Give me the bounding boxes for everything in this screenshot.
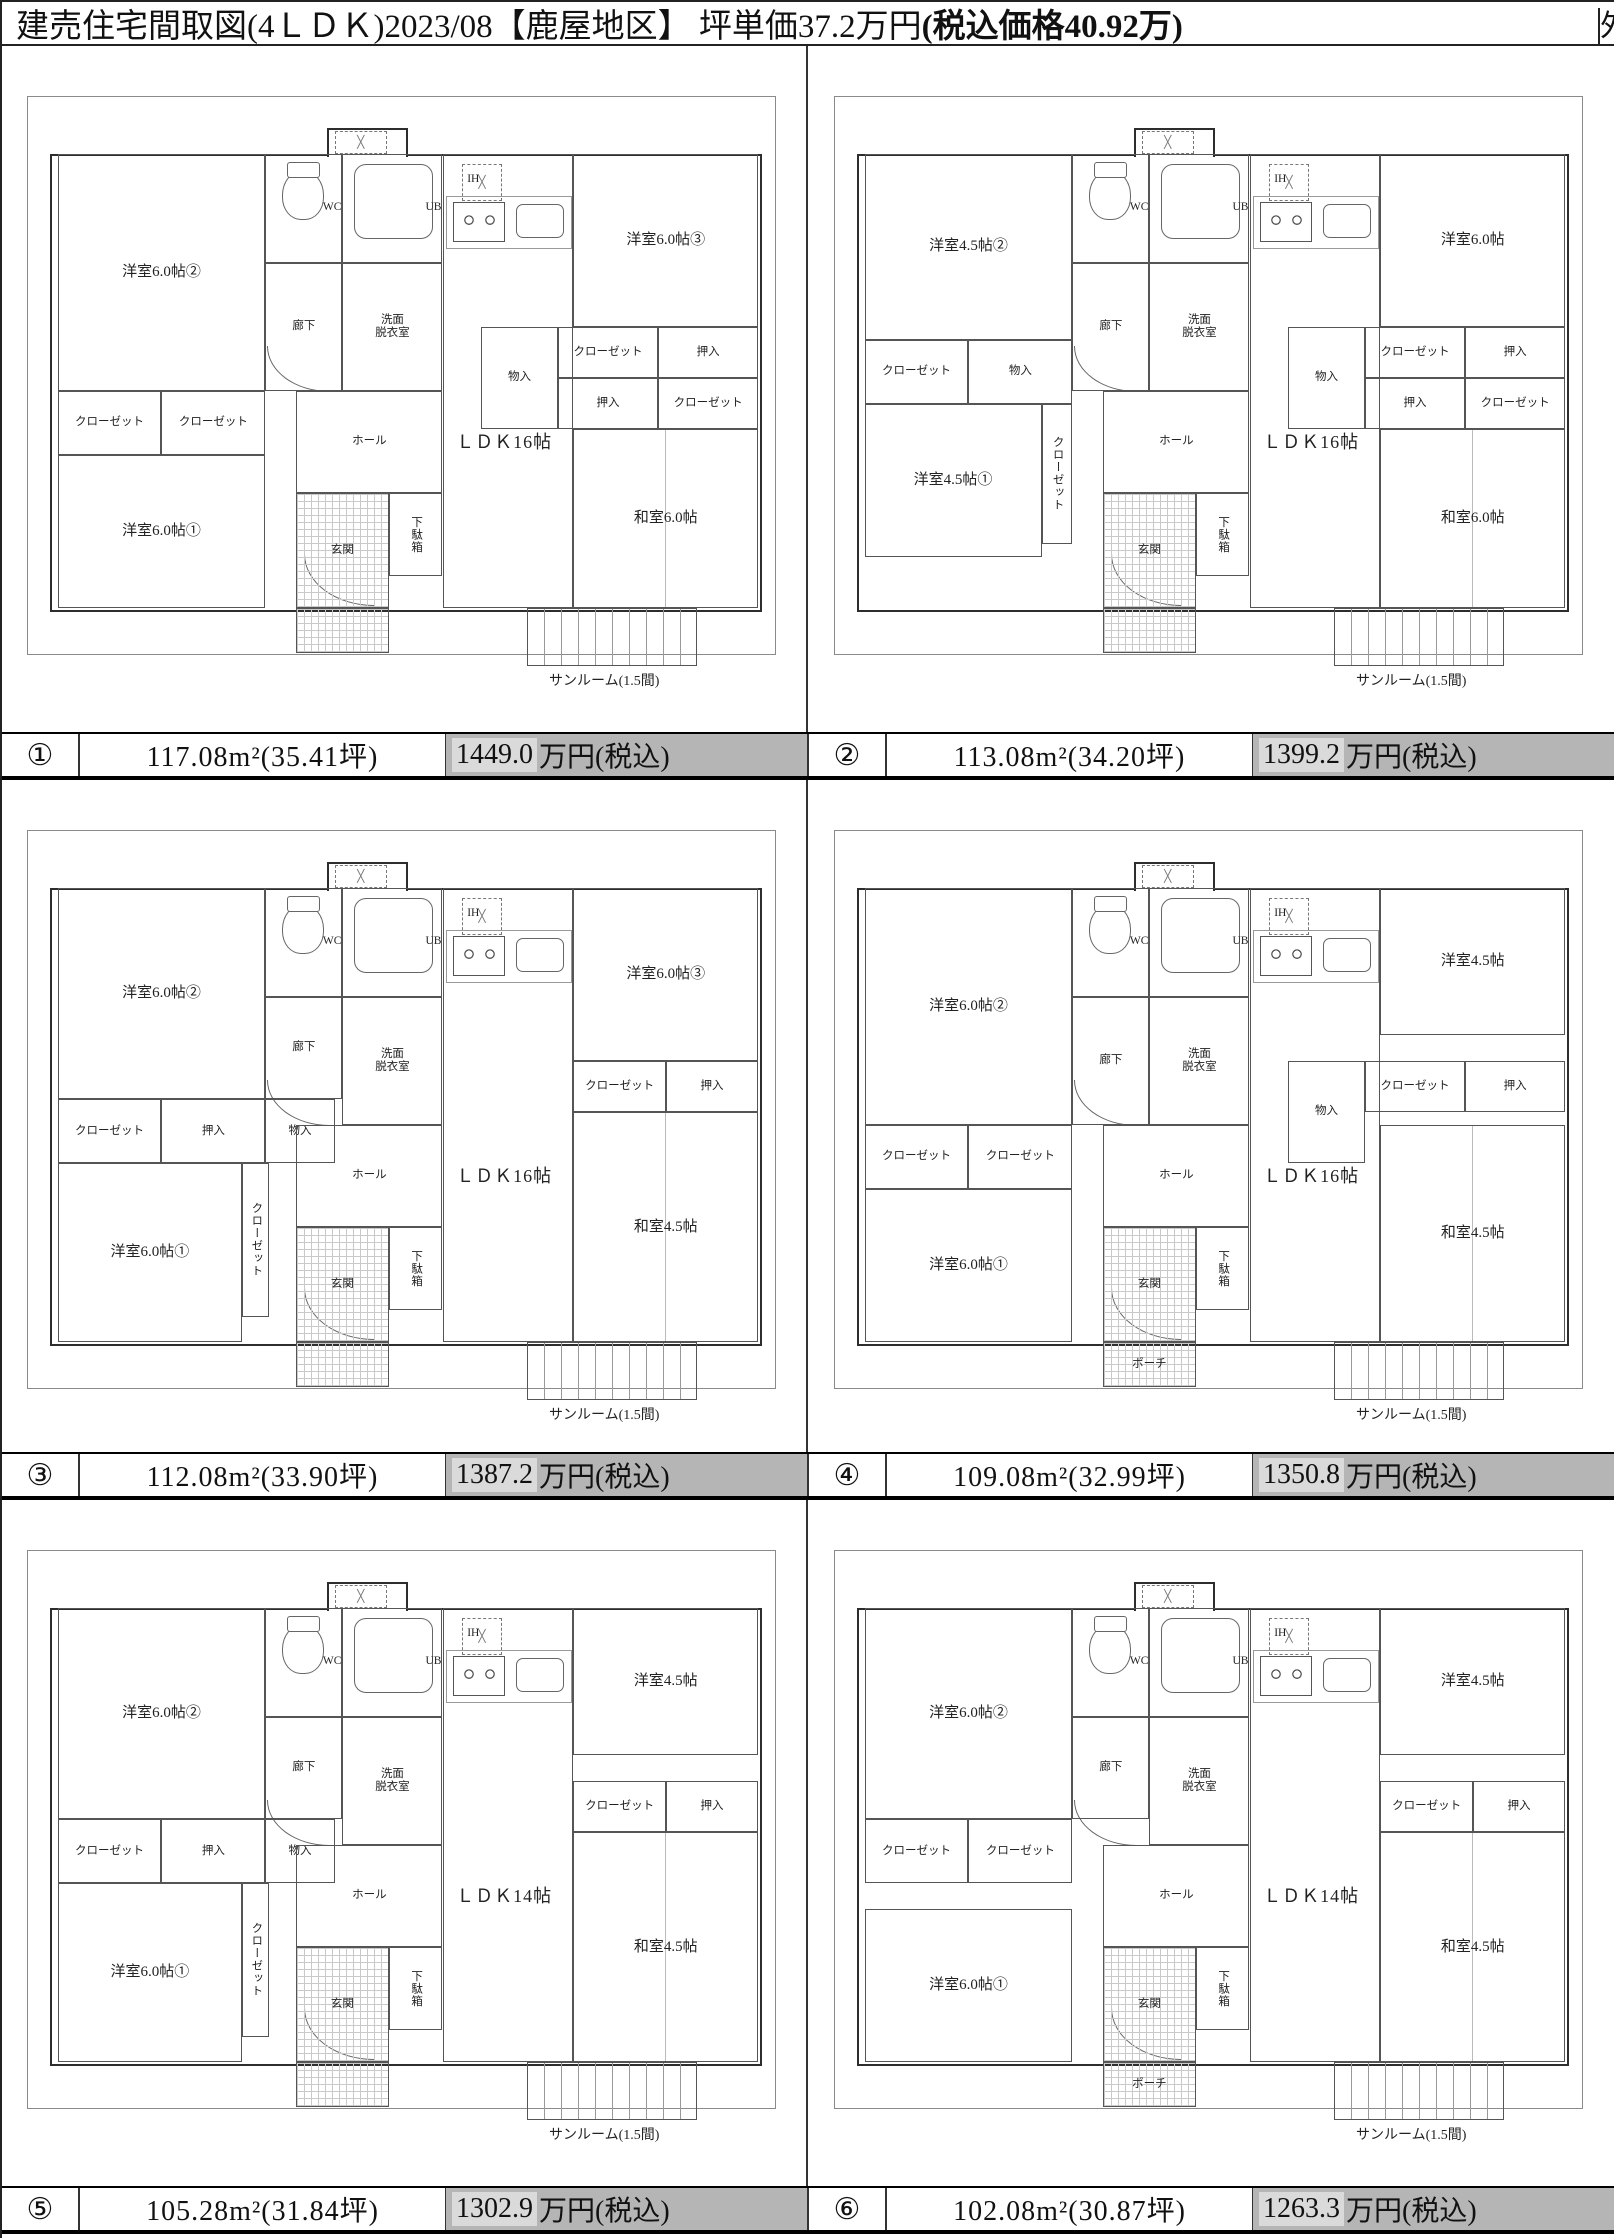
room-ub: UB: [1149, 154, 1249, 263]
vent-icon: ╳: [1142, 131, 1194, 154]
room-corridor: 廊下: [1072, 997, 1149, 1125]
price-value: 1449.0: [452, 738, 537, 772]
plan-number-badge: ⑤: [2, 2188, 80, 2230]
plans-row-1: ╳╳洋室6.0帖②クローゼットクローゼット洋室6.0帖①WCUB廊下洗面脱衣室ホ…: [2, 46, 1614, 732]
closet-oshiire: 押入: [558, 378, 658, 429]
room-bed2: 洋室6.0帖②: [58, 154, 266, 391]
plan-number-badge: ④: [809, 1454, 887, 1496]
price-value: 1350.8: [1259, 1458, 1344, 1492]
clipped-edge-text: 外: [1598, 8, 1614, 46]
sheet-header: 建売住宅間取図(4ＬＤＫ)2023/08【鹿屋地区】 坪単価37.2万円 (税込…: [2, 0, 1614, 46]
plan-area: 109.08m²(32.99坪): [887, 1454, 1252, 1496]
price-suffix: 万円(税込): [1346, 1455, 1477, 1495]
price-value: 1302.9: [452, 2192, 537, 2226]
room-bed2: 洋室6.0帖②: [58, 888, 266, 1099]
price-value: 1387.2: [452, 1458, 537, 1492]
info-row-2: ③ 112.08m²(33.90坪) 1387.2 万円(税込) ④ 109.0…: [2, 1452, 1614, 1500]
label-ih: IH: [446, 167, 500, 193]
closet: クローゼット: [865, 1125, 969, 1189]
room-senmen: 洗面脱衣室: [1149, 1717, 1249, 1845]
plan-price: 1449.0 万円(税込): [445, 734, 807, 776]
room-bed3: 洋室4.5帖: [1380, 1608, 1565, 1755]
room-washitsu: 和室4.5帖: [573, 1112, 758, 1342]
plan-cell-1: ╳╳洋室6.0帖②クローゼットクローゼット洋室6.0帖①WCUB廊下洗面脱衣室ホ…: [2, 46, 808, 732]
floorplan-canvas-4: ╳╳洋室6.0帖②クローゼットクローゼット洋室6.0帖①WCUB廊下洗面脱衣室ホ…: [826, 792, 1596, 1432]
price-suffix: 万円(税込): [539, 2189, 670, 2229]
room-hall: ホール: [296, 1845, 442, 1947]
plan-area: 102.08m²(30.87坪): [887, 2188, 1252, 2230]
room-washitsu: 和室6.0帖: [1380, 429, 1565, 608]
closet: クローゼット: [968, 1819, 1072, 1883]
plan-price: 1350.8 万円(税込): [1252, 1454, 1614, 1496]
porch: [296, 2062, 388, 2107]
room-hall: ホール: [296, 391, 442, 493]
closet-oshiire: 押入: [1365, 378, 1465, 429]
info-plan-3: ③ 112.08m²(33.90坪) 1387.2 万円(税込): [2, 1454, 809, 1496]
info-plan-4: ④ 109.08m²(32.99坪) 1350.8 万円(税込): [809, 1454, 1614, 1496]
sunroom-caption: サンルーム(1.5間): [466, 667, 743, 696]
room-getabako: 下駄箱: [1196, 493, 1250, 576]
floorplan-canvas-2: ╳╳洋室4.5帖②クローゼット物入洋室4.5帖①クローゼットWCUB廊下洗面脱衣…: [826, 58, 1596, 698]
plan-price: 1263.3 万円(税込): [1252, 2188, 1614, 2230]
room-bed3: 洋室6.0帖③: [573, 154, 758, 327]
plan-price: 1302.9 万円(税込): [445, 2188, 807, 2230]
porch: ポーチ: [1103, 1342, 1195, 1387]
room-senmen: 洗面脱衣室: [342, 997, 442, 1125]
label-ih: IH: [1253, 1621, 1307, 1647]
room-bed3: 洋室6.0帖③: [573, 888, 758, 1061]
closet: クローゼット: [558, 327, 658, 378]
sunroom: [527, 1342, 696, 1400]
room-getabako: 下駄箱: [389, 1947, 443, 2030]
sunroom: [527, 2062, 696, 2120]
floorplan-canvas-3: ╳╳洋室6.0帖②クローゼット押入物入洋室6.0帖①クローゼットWCUB廊下洗面…: [19, 792, 789, 1432]
price-suffix: 万円(税込): [1346, 2189, 1477, 2229]
sunroom: [1334, 2062, 1503, 2120]
room-ub: UB: [342, 1608, 442, 1717]
closet-oshiire: 押入: [658, 327, 758, 378]
closet-oshiire: 押入: [1473, 1781, 1565, 1832]
room-washitsu: 和室4.5帖: [1380, 1125, 1565, 1343]
plan-cell-4: ╳╳洋室6.0帖②クローゼットクローゼット洋室6.0帖①WCUB廊下洗面脱衣室ホ…: [808, 780, 1614, 1452]
closet-oshiire: 押入: [1465, 327, 1565, 378]
room-bed1: 洋室4.5帖①: [865, 404, 1042, 558]
room-bed1: 洋室6.0帖①: [58, 1883, 243, 2062]
room-ub: UB: [342, 888, 442, 997]
sunroom-caption: サンルーム(1.5間): [1273, 667, 1550, 696]
floorplan-sheet: 建売住宅間取図(4ＬＤＫ)2023/08【鹿屋地区】 坪単価37.2万円 (税込…: [0, 0, 1614, 2238]
info-plan-2: ② 113.08m²(34.20坪) 1399.2 万円(税込): [809, 734, 1614, 776]
plan-area: 105.28m²(31.84坪): [80, 2188, 445, 2230]
room-ldk-label: ＬＤＫ16帖: [427, 1150, 581, 1201]
price-suffix: 万円(税込): [539, 1455, 670, 1495]
floorplan-canvas-6: ╳╳洋室6.0帖②クローゼットクローゼット洋室6.0帖①WCUB廊下洗面脱衣室ホ…: [826, 1512, 1596, 2152]
vent-icon: ╳: [335, 865, 387, 888]
room-genkan: 玄関: [1103, 1947, 1195, 2062]
room-washitsu: 和室6.0帖: [573, 429, 758, 608]
closet: クローゼット: [1365, 1061, 1465, 1112]
room-genkan: 玄関: [1103, 493, 1195, 608]
room-getabako: 下駄箱: [1196, 1227, 1250, 1310]
room-wc: WC: [265, 1608, 342, 1717]
sunroom: [1334, 1342, 1503, 1400]
room-corridor: 廊下: [1072, 263, 1149, 391]
plan-area: 112.08m²(33.90坪): [80, 1454, 445, 1496]
vent-icon: ╳: [1142, 865, 1194, 888]
porch: [296, 608, 388, 653]
closet-monoiri: 物入: [1288, 1061, 1365, 1163]
closet-oshiire: 押入: [161, 1099, 265, 1163]
room-corridor: 廊下: [1072, 1717, 1149, 1819]
room-hall: ホール: [1103, 1845, 1249, 1947]
room-senmen: 洗面脱衣室: [342, 263, 442, 391]
room-senmen: 洗面脱衣室: [342, 1717, 442, 1845]
vent-icon: ╳: [335, 1585, 387, 1608]
closet-monoiri: 物入: [1288, 327, 1365, 429]
price-value: 1399.2: [1259, 738, 1344, 772]
room-bed2: 洋室6.0帖②: [58, 1608, 266, 1819]
room-bed1: 洋室6.0帖①: [58, 1163, 243, 1342]
room-senmen: 洗面脱衣室: [1149, 263, 1249, 391]
closet: クローゼット: [161, 391, 265, 455]
plan-number-badge: ②: [809, 734, 887, 776]
plan-cell-6: ╳╳洋室6.0帖②クローゼットクローゼット洋室6.0帖①WCUB廊下洗面脱衣室ホ…: [808, 1500, 1614, 2186]
room-bed2: 洋室6.0帖②: [865, 888, 1073, 1125]
porch: [296, 1342, 388, 1387]
label-ih: IH: [1253, 901, 1307, 927]
room-wc: WC: [1072, 888, 1149, 997]
label-ih: IH: [446, 1621, 500, 1647]
closet: クローゼット: [1365, 327, 1465, 378]
floorplan-canvas-1: ╳╳洋室6.0帖②クローゼットクローゼット洋室6.0帖①WCUB廊下洗面脱衣室ホ…: [19, 58, 789, 698]
plan-number-badge: ③: [2, 1454, 80, 1496]
room-hall: ホール: [1103, 1125, 1249, 1227]
room-senmen: 洗面脱衣室: [1149, 997, 1249, 1125]
closet: クローゼット: [58, 1099, 162, 1163]
room-ldk: [1250, 1608, 1381, 2062]
price-value: 1263.3: [1259, 2192, 1344, 2226]
room-getabako: 下駄箱: [389, 1227, 443, 1310]
room-corridor: 廊下: [265, 263, 342, 391]
closet: クローゼット: [968, 1125, 1072, 1189]
closet: クローゼット: [865, 340, 969, 404]
sheet-title-tax-price: (税込価格40.92万): [922, 0, 1183, 47]
room-genkan: 玄関: [296, 1947, 388, 2062]
room-bed3: 洋室6.0帖: [1380, 154, 1565, 327]
closet: クローゼット: [865, 1819, 969, 1883]
room-hall: ホール: [296, 1125, 442, 1227]
room-getabako: 下駄箱: [389, 493, 443, 576]
room-genkan: 玄関: [296, 493, 388, 608]
room-wc: WC: [265, 154, 342, 263]
info-plan-6: ⑥ 102.08m²(30.87坪) 1263.3 万円(税込): [809, 2188, 1614, 2230]
closet: クローゼット: [1465, 378, 1565, 429]
room-ub: UB: [1149, 1608, 1249, 1717]
closet-oshiire: 押入: [161, 1819, 265, 1883]
sunroom-caption: サンルーム(1.5間): [466, 1401, 743, 1430]
vent-icon: ╳: [1142, 1585, 1194, 1608]
porch: [1103, 608, 1195, 653]
room-genkan: 玄関: [296, 1227, 388, 1342]
plan-cell-2: ╳╳洋室4.5帖②クローゼット物入洋室4.5帖①クローゼットWCUB廊下洗面脱衣…: [808, 46, 1614, 732]
room-washitsu: 和室4.5帖: [1380, 1832, 1565, 2062]
room-corridor: 廊下: [265, 997, 342, 1099]
plan-price: 1387.2 万円(税込): [445, 1454, 807, 1496]
info-row-3: ⑤ 105.28m²(31.84坪) 1302.9 万円(税込) ⑥ 102.0…: [2, 2186, 1614, 2234]
room-corridor: 廊下: [265, 1717, 342, 1819]
room-ldk: [443, 1608, 574, 2062]
room-bed2: 洋室4.5帖②: [865, 154, 1073, 340]
sunroom-caption: サンルーム(1.5間): [1273, 1401, 1550, 1430]
price-suffix: 万円(税込): [1346, 735, 1477, 775]
closet-oshiire: 押入: [1465, 1061, 1565, 1112]
porch: ポーチ: [1103, 2062, 1195, 2107]
label-ih: IH: [446, 901, 500, 927]
plans-row-2: ╳╳洋室6.0帖②クローゼット押入物入洋室6.0帖①クローゼットWCUB廊下洗面…: [2, 780, 1614, 1452]
sunroom: [1334, 608, 1503, 666]
room-washitsu: 和室4.5帖: [573, 1832, 758, 2062]
room-ldk-label: ＬＤＫ14帖: [427, 1870, 581, 1921]
room-bed1: 洋室6.0帖①: [865, 1189, 1073, 1343]
room-wc: WC: [265, 888, 342, 997]
closet-oshiire: 押入: [666, 1061, 758, 1112]
room-wc: WC: [1072, 154, 1149, 263]
closet: クローゼット: [573, 1781, 665, 1832]
closet: クローゼット: [1380, 1781, 1472, 1832]
closet-monoiri: 物入: [481, 327, 558, 429]
plan-number-badge: ⑥: [809, 2188, 887, 2230]
closet: クローゼット: [58, 391, 162, 455]
room-getabako: 下駄箱: [1196, 1947, 1250, 2030]
closet: クローゼット: [242, 1163, 269, 1317]
plans-row-3: ╳╳洋室6.0帖②クローゼット押入物入洋室6.0帖①クローゼットWCUB廊下洗面…: [2, 1500, 1614, 2186]
room-ub: UB: [342, 154, 442, 263]
room-ldk-label: ＬＤＫ14帖: [1234, 1870, 1388, 1921]
room-bed3: 洋室4.5帖: [573, 1608, 758, 1755]
closet: クローゼット: [658, 378, 758, 429]
room-ldk: [443, 888, 574, 1342]
closet-oshiire: 押入: [666, 1781, 758, 1832]
room-bed3: 洋室4.5帖: [1380, 888, 1565, 1035]
sunroom: [527, 608, 696, 666]
room-bed1: 洋室6.0帖①: [58, 455, 266, 609]
closet: クローゼット: [1042, 404, 1073, 545]
closet: クローゼット: [573, 1061, 665, 1112]
sunroom-caption: サンルーム(1.5間): [1273, 2121, 1550, 2150]
plan-price: 1399.2 万円(税込): [1252, 734, 1614, 776]
info-plan-5: ⑤ 105.28m²(31.84坪) 1302.9 万円(税込): [2, 2188, 809, 2230]
plan-area: 117.08m²(35.41坪): [80, 734, 445, 776]
room-bed1: 洋室6.0帖①: [865, 1909, 1073, 2063]
closet-monoiri: 物入: [968, 340, 1072, 404]
plan-cell-3: ╳╳洋室6.0帖②クローゼット押入物入洋室6.0帖①クローゼットWCUB廊下洗面…: [2, 780, 808, 1452]
sheet-title: 建売住宅間取図(4ＬＤＫ)2023/08【鹿屋地区】 坪単価37.2万円: [16, 0, 922, 47]
floorplan-canvas-5: ╳╳洋室6.0帖②クローゼット押入物入洋室6.0帖①クローゼットWCUB廊下洗面…: [19, 1512, 789, 2152]
info-row-1: ① 117.08m²(35.41坪) 1449.0 万円(税込) ② 113.0…: [2, 732, 1614, 780]
plan-number-badge: ①: [2, 734, 80, 776]
room-genkan: 玄関: [1103, 1227, 1195, 1342]
room-wc: WC: [1072, 1608, 1149, 1717]
sunroom-caption: サンルーム(1.5間): [466, 2121, 743, 2150]
plan-cell-5: ╳╳洋室6.0帖②クローゼット押入物入洋室6.0帖①クローゼットWCUB廊下洗面…: [2, 1500, 808, 2186]
closet: クローゼット: [58, 1819, 162, 1883]
price-suffix: 万円(税込): [539, 735, 670, 775]
info-plan-1: ① 117.08m²(35.41坪) 1449.0 万円(税込): [2, 734, 809, 776]
label-ih: IH: [1253, 167, 1307, 193]
closet: クローゼット: [242, 1883, 269, 2037]
room-bed2: 洋室6.0帖②: [865, 1608, 1073, 1819]
vent-icon: ╳: [335, 131, 387, 154]
room-hall: ホール: [1103, 391, 1249, 493]
room-ub: UB: [1149, 888, 1249, 997]
plan-area: 113.08m²(34.20坪): [887, 734, 1252, 776]
